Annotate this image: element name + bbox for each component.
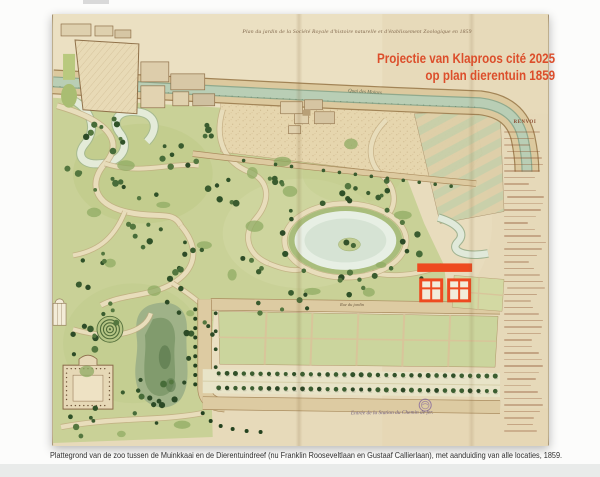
page-bottom-strip xyxy=(0,464,600,477)
page-edge-tab xyxy=(83,0,109,4)
map-legend: RENVOI xyxy=(504,120,546,437)
garden-street-label: Rue du jardin xyxy=(340,302,364,307)
map-photo: Plan du jardin de la Société Royale d'hi… xyxy=(52,14,549,446)
map-handwritten-title: Plan du jardin de la Société Royale d'hi… xyxy=(192,29,522,35)
legend-entries xyxy=(504,131,546,432)
projection-title: Projectie van Klaproos cité 2025 op plan… xyxy=(377,51,555,84)
projection-line-2: op plan dierentuin 1859 xyxy=(377,68,555,85)
projection-line-1: Projectie van Klaproos cité 2025 xyxy=(377,51,555,68)
legend-header: RENVOI xyxy=(504,120,546,125)
screenshot-root: Plan du jardin de la Société Royale d'hi… xyxy=(0,0,600,477)
caption-text: Plattegrond van de zoo tussen de Muinkka… xyxy=(50,450,562,460)
